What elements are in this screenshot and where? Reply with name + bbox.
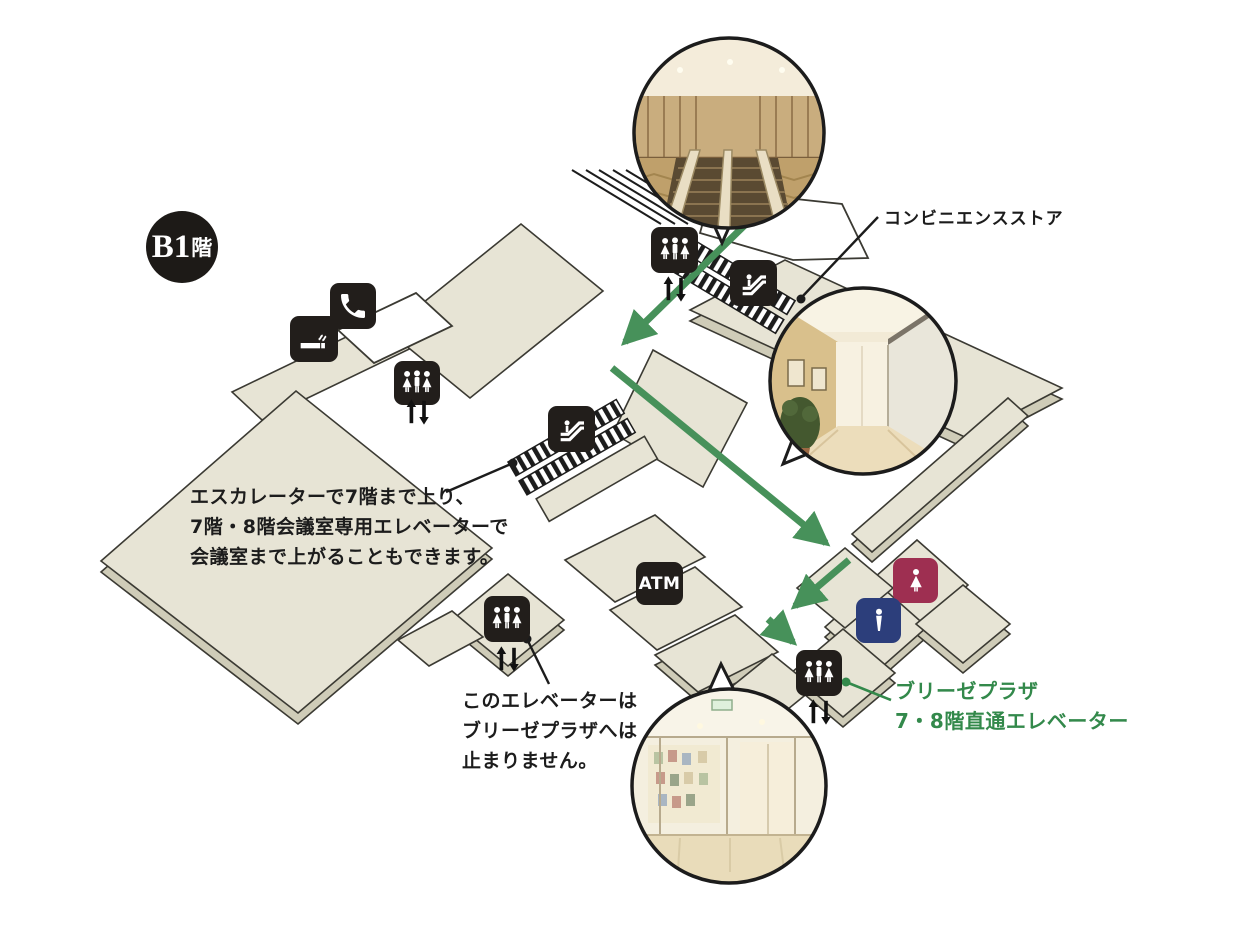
atm-tile: ATM [636,562,683,605]
restroom-men-icon [864,605,894,637]
escalator-note-line: エスカレーターで7階まで上り、 [190,482,509,512]
floor-badge-main: B1 [152,229,191,266]
escalator-icon [555,413,589,445]
restroom-women-tile [893,558,938,603]
escalator-note-line: 7階・8階会議室専用エレベーターで [190,512,509,542]
up-down-arrows-icon [400,398,434,430]
escalator-note: エスカレーターで7階まで上り、 7階・8階会議室専用エレベーターで 会議室まで上… [190,482,509,572]
escalator-icon [737,267,771,299]
restroom-women-icon [901,565,931,597]
direct-elevator-label-line: ブリーゼプラザ [895,676,1129,706]
elevator-note-line: このエレベーターは [462,686,638,716]
floor-map-canvas [0,0,1240,930]
elevator-icon [801,656,837,690]
elevator-icon [489,602,525,636]
direct-elevator-label: ブリーゼプラザ 7・8階直通エレベーター [895,676,1129,736]
up-down-arrows-icon [657,275,691,307]
corridor-photo [770,288,956,474]
floor-badge-suffix: 階 [191,232,212,262]
atm-icon: ATM [639,574,681,594]
floor-badge: B1階 [146,211,218,283]
elevator-tile-lower-left [484,596,530,642]
restroom-men-tile [856,598,901,643]
escalator-tile-middle [548,406,595,452]
smoking-icon [297,323,331,355]
smoking-tile [290,316,338,362]
elevator-tile-breeze-plaza [796,650,842,696]
up-down-arrows-icon [802,698,836,730]
direct-elevator-label-line: 7・8階直通エレベーター [895,706,1129,736]
elevator-icon [657,233,693,267]
elevator-tile-top [651,227,698,273]
elevator-note-line: 止まりません。 [462,746,638,776]
elevator-note: このエレベーターは ブリーゼプラザへは 止まりません。 [462,686,638,776]
up-down-arrows-icon [490,645,524,677]
b1-floor-map: ATM B1階 コンビニエンスストア エスカレーターで7階まで上り、 7階・8階… [0,0,1240,930]
escalator-tile-top [730,260,777,306]
convenience-store-label: コンビニエンスストア [884,204,1064,229]
escalator-note-line: 会議室まで上がることもできます。 [190,542,509,572]
elevator-icon [399,366,435,400]
elevator-note-line: ブリーゼプラザへは [462,716,638,746]
phone-icon [337,290,369,322]
